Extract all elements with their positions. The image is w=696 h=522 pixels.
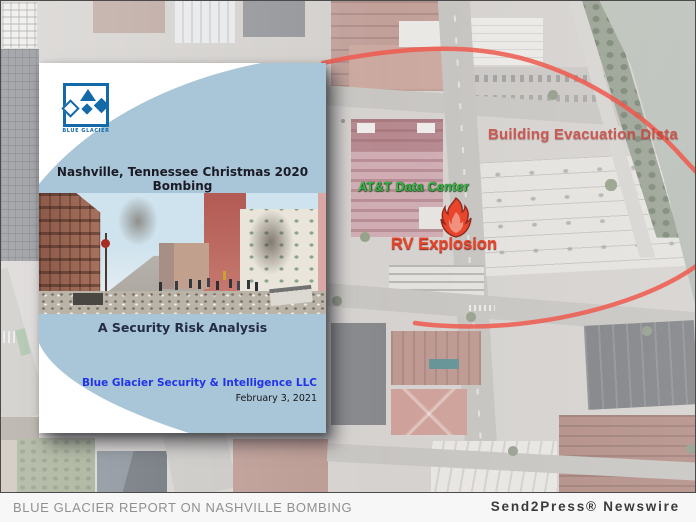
photo-bare-tree	[117, 195, 159, 247]
cover-subtitle: A Security Risk Analysis	[39, 320, 326, 335]
photo-caption: BLUE GLACIER REPORT ON NASHVILLE BOMBING	[13, 500, 352, 515]
logo-wordmark: BLUE GLACIER	[57, 128, 115, 134]
photo-distant-buildings	[159, 243, 209, 289]
report-cover: BLUE GLACIER Nashville, Tennessee Christ…	[39, 63, 326, 433]
logo-diamond-icon	[94, 98, 110, 114]
evacuation-distance-label: Building Evacuation Dista	[488, 126, 678, 143]
explosion-flame-icon	[441, 198, 471, 237]
news-photo: AT&T Data Center RV Explosion Building E…	[0, 0, 696, 522]
photo-burnt-car	[73, 293, 103, 305]
newswire-credit: Send2Press® Newswire	[491, 499, 680, 514]
att-data-center-label: AT&T Data Center	[358, 180, 469, 194]
photo-wreath	[101, 239, 110, 248]
caption-bar: BLUE GLACIER REPORT ON NASHVILLE BOMBING…	[0, 493, 696, 522]
cover-company: Blue Glacier Security & Intelligence LLC	[82, 377, 317, 389]
aerial-photo-frame: AT&T Data Center RV Explosion Building E…	[0, 0, 696, 493]
logo-square-icon	[63, 83, 109, 127]
logo-diamond-icon	[61, 99, 79, 117]
cover-date: February 3, 2021	[236, 393, 317, 404]
rv-explosion-label: RV Explosion	[391, 235, 497, 254]
evacuation-circle-bottom-arc	[415, 264, 696, 326]
photo-bare-tree	[247, 207, 295, 277]
cover-title: Nashville, Tennessee Christmas 2020 Bomb…	[39, 165, 326, 193]
evacuation-circle-top-arc	[323, 49, 696, 175]
logo-triangle-icon	[80, 89, 96, 101]
cover-damage-photo	[39, 193, 326, 314]
logo-diamond-icon	[81, 103, 92, 114]
blue-glacier-logo: BLUE GLACIER	[63, 83, 113, 137]
photo-people-silhouettes	[189, 279, 192, 288]
